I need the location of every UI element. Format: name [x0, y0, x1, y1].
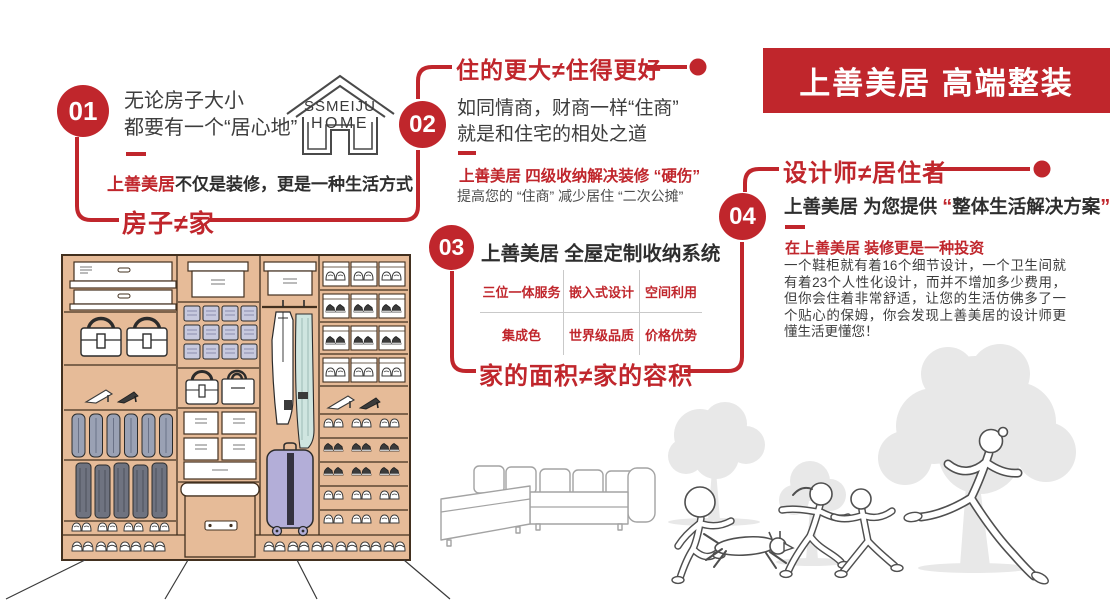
- step-number: 02: [409, 111, 436, 139]
- section02-body: 如同情商，财商一样“住商” 就是和住宅的相处之道: [457, 96, 679, 148]
- section04-paragraph: 一个鞋柜就有着16个细节设计，一个卫生间就有着23个人性化设计，而并不增加多少费…: [784, 258, 1066, 341]
- section04-subtitle: 上善美居 为您提供 “整体生活解决方案”: [784, 193, 1110, 219]
- grid-cell: 空间利用: [640, 270, 702, 312]
- floor-lines: [6, 560, 450, 599]
- big-tree: [878, 344, 1076, 573]
- section02-title: 住的更大≠住得更好: [456, 51, 662, 85]
- logo-text-1: SSMEIJU: [304, 98, 376, 115]
- section02-subtext: 提高您的 “住商” 减少居住 “二次公摊”: [457, 186, 683, 206]
- logo-text-2: HOME: [311, 115, 369, 132]
- section04-title: 设计师≠居住者: [783, 153, 947, 188]
- hanging-garment: [296, 314, 315, 448]
- grid-cell: 集成色: [480, 312, 564, 355]
- step-number: 03: [439, 234, 465, 261]
- subtitle-prefix: 上善美居 为您提供: [784, 196, 942, 217]
- body-line-2: 就是和住宅的相处之道: [457, 122, 679, 148]
- connector-dot: [1034, 161, 1051, 178]
- grid-cell: 三位一体服务: [480, 270, 564, 312]
- boots: [76, 463, 167, 518]
- house-logo: SSMEIJU HOME: [287, 76, 394, 154]
- section04-highlight: 在上善美居 装修更是一种投资: [785, 237, 984, 258]
- intro-line-1: 无论房子大小: [124, 88, 297, 115]
- small-tree: [668, 402, 765, 526]
- slogan-rest: 不仅是装修，更是一种生活方式: [175, 175, 413, 194]
- red-dash: [126, 152, 146, 156]
- keyword-house-not-home: 房子≠家: [122, 204, 215, 240]
- quote-open: “: [942, 196, 952, 218]
- trees-silhouette-illustration: [668, 344, 1076, 573]
- grid-cell: 价格优势: [640, 312, 702, 355]
- suitcase: [267, 443, 313, 536]
- banner-title: 上善美居 高端整装: [799, 58, 1074, 103]
- body-line-1: 如同情商，财商一样“住商”: [457, 96, 679, 122]
- slogan-brand: 上善美居: [107, 175, 175, 194]
- sectional-sofa-illustration: [441, 466, 655, 546]
- quote-close: ”: [1100, 196, 1110, 218]
- section03-title: 上善美居 全屋定制收纳系统: [481, 237, 720, 266]
- running-toddler: [672, 487, 731, 583]
- red-dash: [458, 151, 476, 155]
- connector-dot: [690, 59, 707, 76]
- feature-grid: 三位一体服务 嵌入式设计 空间利用 集成色 世界级品质 价格优势: [480, 270, 702, 355]
- intro-line-2: 都要有一个“居心地”: [124, 115, 297, 142]
- grid-cell: 嵌入式设计: [564, 270, 640, 312]
- section02-highlight: 上善美居 四级收纳解决装修 “硬伤”: [459, 164, 700, 186]
- step-circle-02: 02: [399, 101, 446, 148]
- step-circle-01: 01: [57, 85, 109, 137]
- step-number: 01: [69, 96, 98, 127]
- intro-text: 无论房子大小 都要有一个“居心地”: [124, 88, 297, 142]
- brand-slogan: 上善美居不仅是装修，更是一种生活方式: [107, 170, 413, 195]
- red-dash: [785, 225, 805, 229]
- bench: [181, 483, 259, 557]
- step-number: 04: [729, 203, 756, 231]
- wardrobe-storage-illustration: [6, 255, 450, 599]
- header-banner: 上善美居 高端整装: [763, 48, 1110, 113]
- subtitle-quoted: 整体生活解决方案: [952, 196, 1100, 217]
- hanging-coat: [272, 312, 293, 424]
- step-circle-03: 03: [429, 225, 474, 270]
- step-circle-04: 04: [719, 193, 766, 240]
- poster-canvas: SSMEIJU HOME 上善美居 高端整装 01 02 03 04 无论房子大…: [0, 0, 1110, 600]
- grid-cell: 世界级品质: [564, 312, 640, 355]
- keyword-area-not-volume: 家的面积≠家的容积: [479, 356, 693, 391]
